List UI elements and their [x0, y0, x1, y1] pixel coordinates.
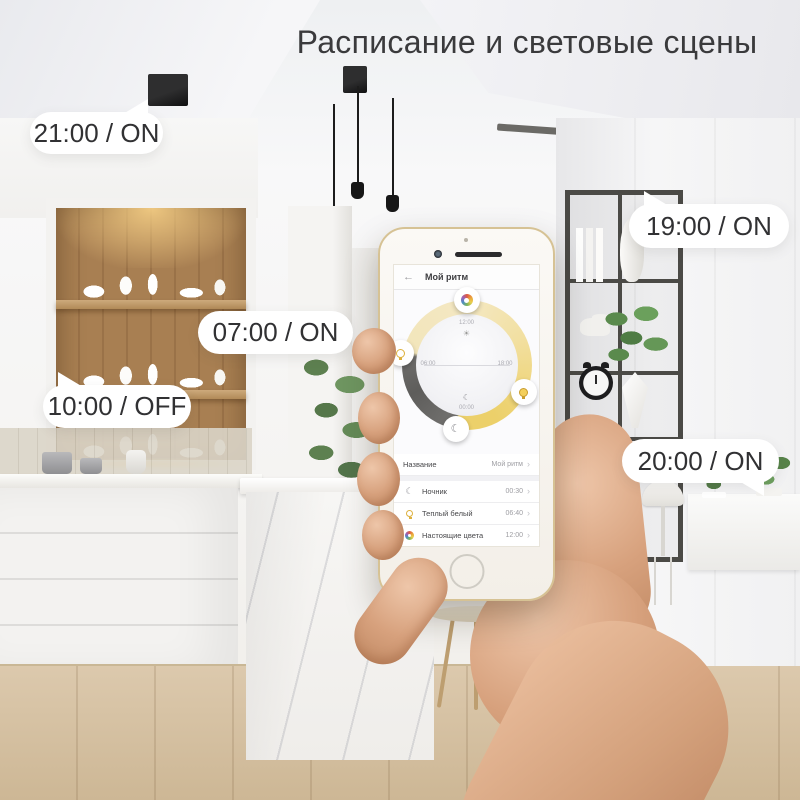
moon-icon: ☾ — [403, 487, 416, 496]
dial-tick-18: 18:00 — [497, 361, 512, 367]
callout-0700: 07:00 / ON — [198, 311, 353, 354]
callout-label: 19:00 / ON — [646, 211, 772, 242]
callout-2000: 20:00 / ON — [622, 439, 779, 483]
sideboard — [688, 494, 800, 570]
scene-time: 06:40 — [505, 510, 523, 517]
scene-time: 12:00 — [505, 532, 523, 539]
dial-face: 12:00 ☀ 06:00 18:00 ☾ 00:00 — [416, 314, 518, 416]
phone-screen: ← Мой ритм 12:00 ☀ 06:00 18:00 ☾ 00:00 — [393, 264, 540, 547]
callout-1000: 10:00 / OFF — [43, 385, 191, 428]
pendant-light — [351, 182, 364, 199]
cooking-pot — [42, 452, 72, 474]
scene-label: Теплый белый — [422, 509, 505, 518]
moon-glyph: ☾ — [405, 487, 413, 496]
countertop — [0, 474, 262, 488]
scene-label: Ночник — [422, 487, 505, 496]
scene-row-warm-white[interactable]: Теплый белый 06:40 › — [394, 503, 539, 525]
alarm-clock — [579, 366, 613, 400]
chevron-right-icon: › — [527, 460, 530, 469]
name-label: Название — [403, 460, 492, 469]
chevron-right-icon: › — [527, 531, 530, 540]
scene-marker-colors[interactable] — [454, 287, 480, 313]
chevron-right-icon: › — [527, 487, 530, 496]
speaker-grille — [455, 252, 502, 257]
app-title: Мой ритм — [425, 272, 468, 282]
dial-tick-00: 00:00 — [459, 405, 474, 411]
scene-label: Настоящие цвета — [422, 531, 505, 540]
kettle — [126, 450, 146, 474]
name-value: Мой ритм — [492, 461, 523, 468]
page-title: Расписание и световые сцены — [281, 24, 773, 61]
moon-icon: ☾ — [451, 424, 461, 435]
cooking-pot — [80, 458, 102, 474]
callout-label: 10:00 / OFF — [48, 391, 187, 422]
base-cabinets — [0, 488, 238, 672]
palette-shape — [405, 531, 414, 540]
smartphone: ← Мой ритм 12:00 ☀ 06:00 18:00 ☾ 00:00 — [378, 227, 555, 601]
scene-time: 00:30 — [505, 488, 523, 495]
front-camera-icon — [434, 250, 442, 258]
bulb-gold-icon — [519, 388, 528, 397]
table-lamp — [642, 480, 684, 564]
callout-1900: 19:00 / ON — [629, 204, 789, 248]
callout-2100: 21:00 / ON — [30, 112, 163, 154]
pendant-light — [386, 195, 399, 212]
spotlight-cube — [148, 74, 188, 106]
scene-row-night[interactable]: ☾ Ночник 00:30 › — [394, 481, 539, 503]
bulb-icon — [396, 349, 405, 358]
fingertip — [357, 452, 400, 506]
scene-marker-evening[interactable] — [511, 379, 537, 405]
callout-label: 21:00 / ON — [34, 118, 160, 149]
fingertip — [352, 328, 396, 374]
proximity-sensor-icon — [464, 238, 468, 242]
bulb-shape — [406, 510, 413, 517]
dishware — [67, 270, 234, 300]
callout-label: 20:00 / ON — [638, 446, 764, 477]
palette-icon — [403, 531, 416, 540]
callout-label: 07:00 / ON — [213, 317, 339, 348]
spotlight-cube — [343, 66, 367, 93]
candles — [576, 228, 606, 282]
scene-marker-night[interactable]: ☾ — [443, 416, 469, 442]
shelf-plant — [598, 300, 672, 376]
promo-image: ← Мой ритм 12:00 ☀ 06:00 18:00 ☾ 00:00 — [0, 0, 800, 800]
fingertip — [358, 392, 400, 444]
chevron-right-icon: › — [527, 509, 530, 518]
bulb-icon — [403, 510, 416, 517]
pendant-cord — [357, 86, 359, 184]
name-row[interactable]: Название Мой ритм › — [394, 454, 539, 476]
daily-rhythm-dial: 12:00 ☀ 06:00 18:00 ☾ 00:00 ☾ — [394, 290, 539, 454]
plant-pot — [702, 492, 726, 498]
dial-tick-06: 06:00 — [421, 361, 436, 367]
shelf-backlight-glow — [56, 208, 246, 268]
palette-icon — [461, 294, 473, 306]
dial-ring[interactable]: 12:00 ☀ 06:00 18:00 ☾ 00:00 — [402, 300, 532, 430]
shelf-board — [56, 300, 246, 309]
sun-icon: ☀ — [463, 329, 470, 338]
home-button[interactable] — [449, 554, 484, 589]
moon-icon: ☾ — [463, 393, 470, 402]
scene-row-true-colors[interactable]: Настоящие цвета 12:00 › — [394, 525, 539, 547]
fingertip — [362, 510, 404, 560]
dial-tick-12: 12:00 — [459, 320, 474, 326]
pendant-cord — [392, 98, 394, 197]
back-button[interactable]: ← — [403, 271, 414, 283]
